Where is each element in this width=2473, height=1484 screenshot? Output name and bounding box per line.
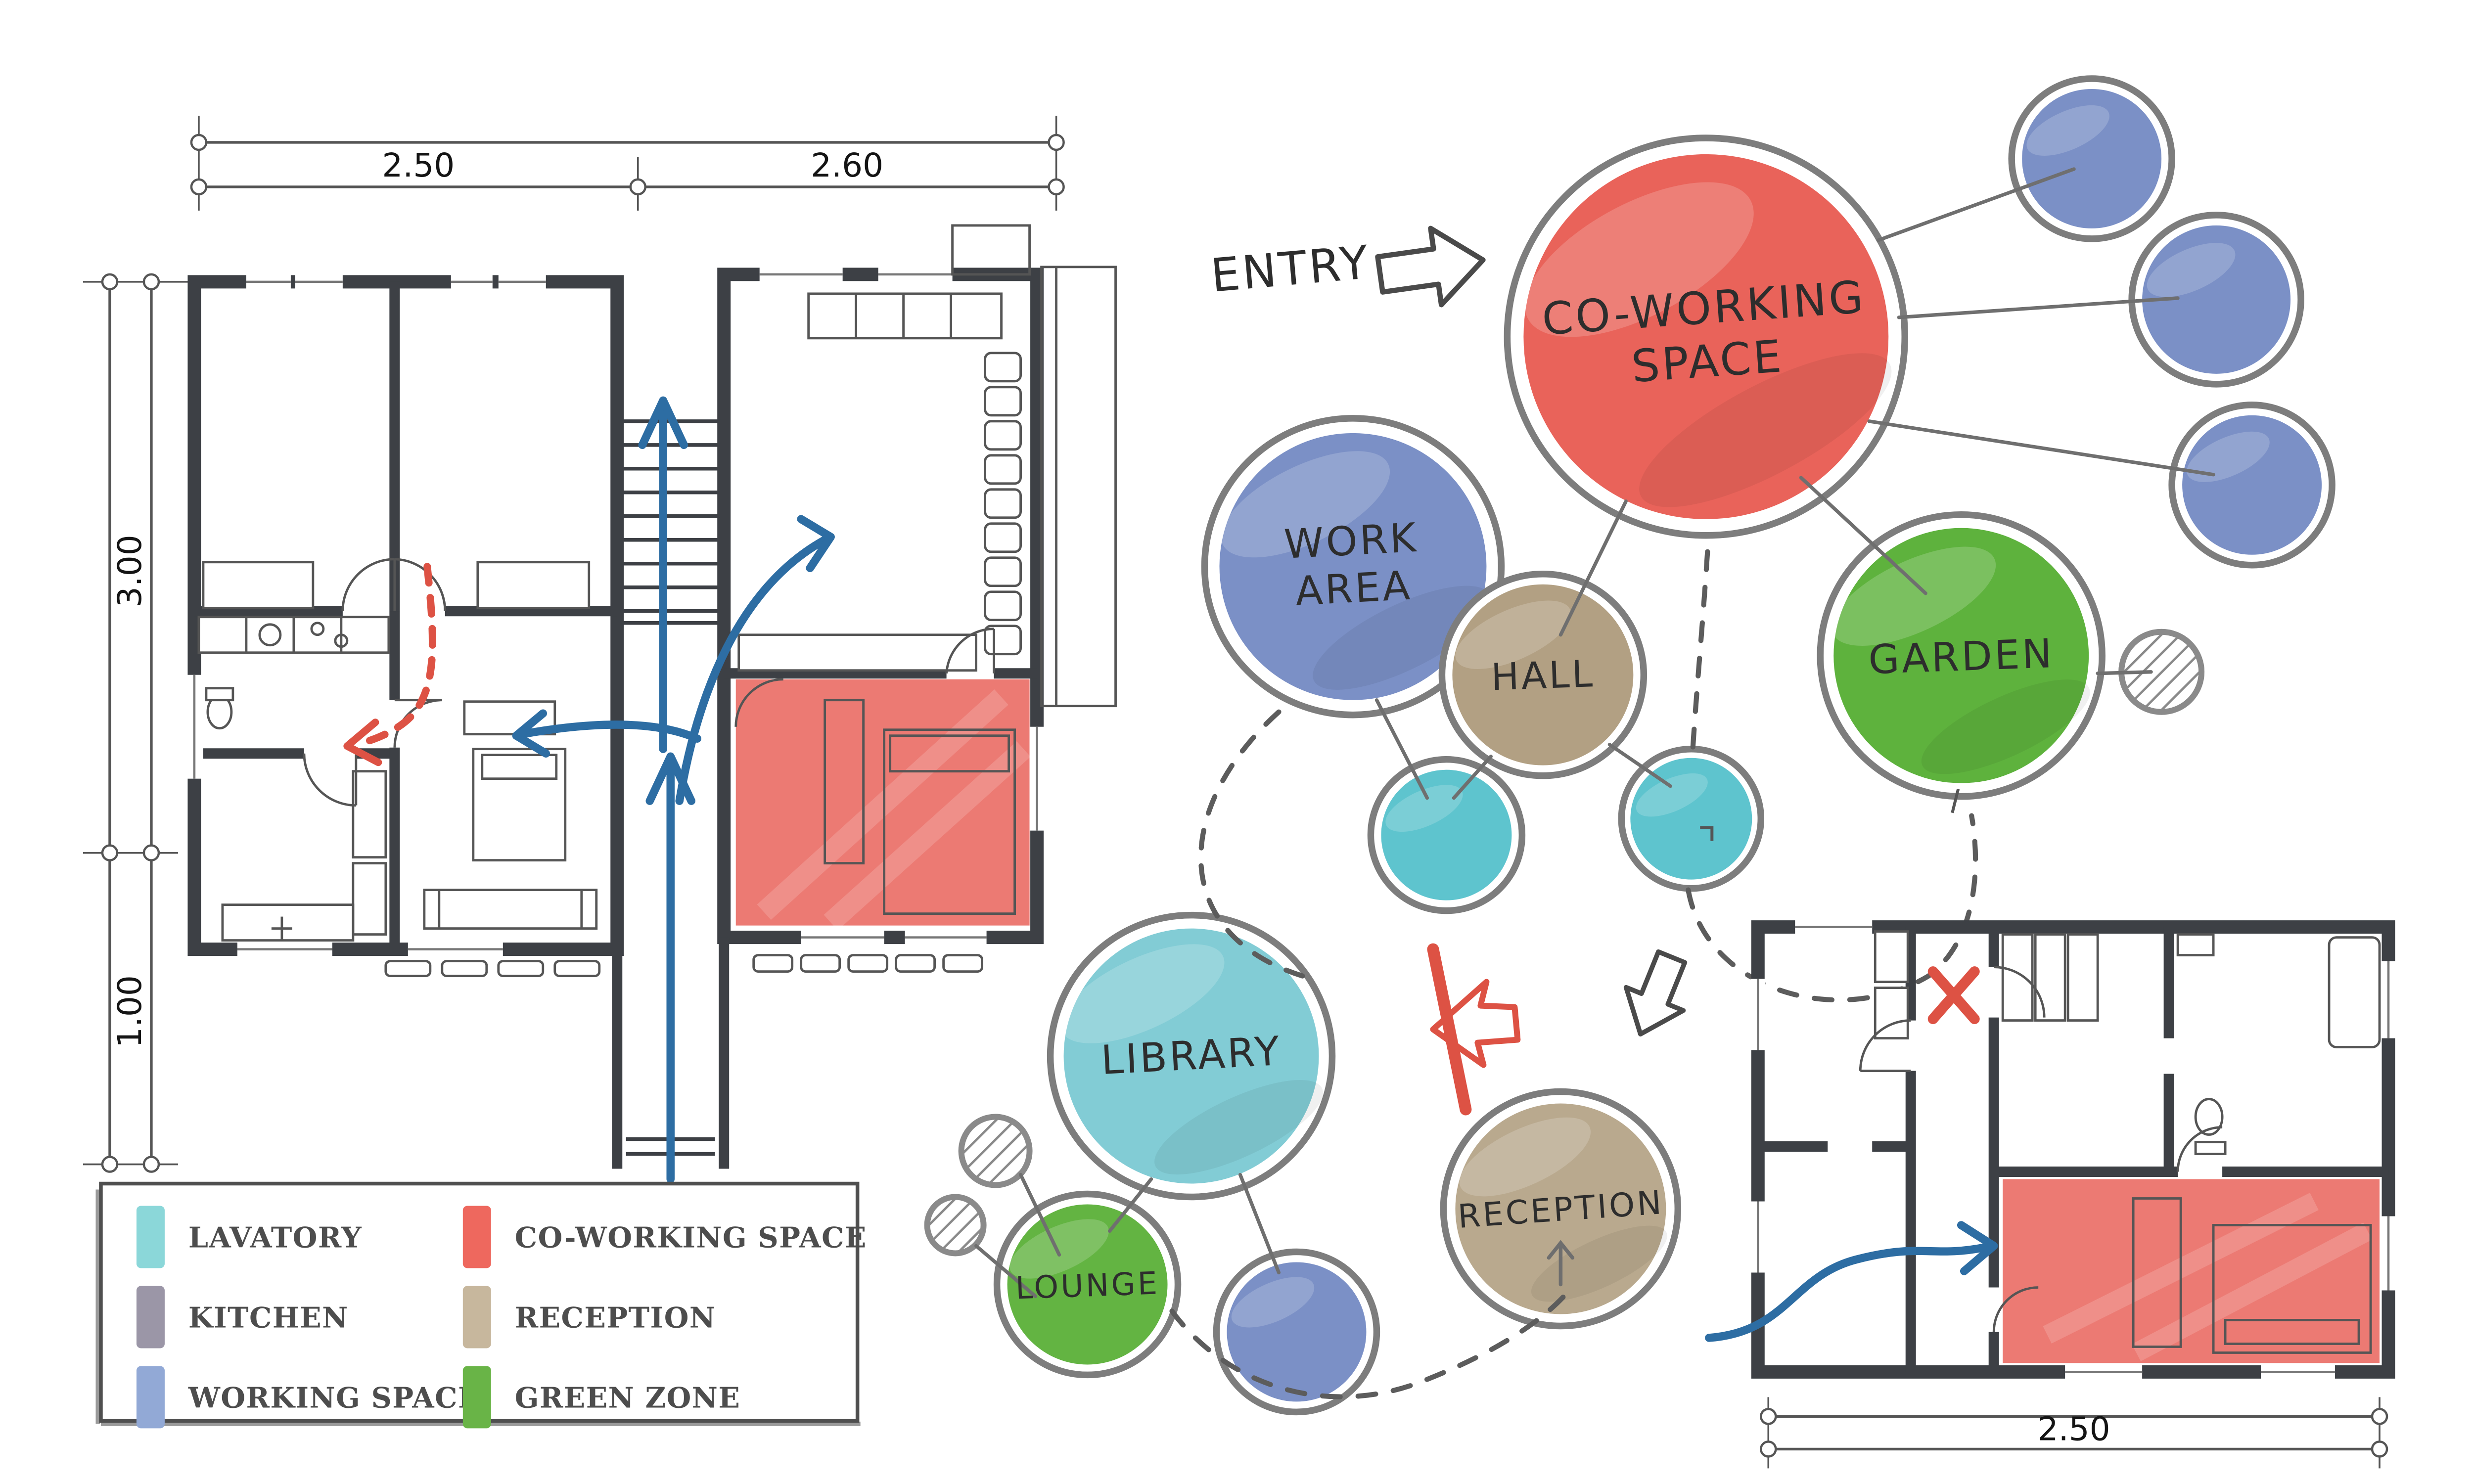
legend: LAVATORY KITCHEN WORKING SPACE CO-WORKIN… [98, 1184, 867, 1429]
coworking-label-line2: SPACE [1630, 330, 1785, 393]
entry-label: ENTRY [1209, 235, 1373, 303]
bubble-lavatory-2 [1621, 749, 1761, 889]
lounge-label: LOUNGE [1015, 1265, 1160, 1306]
down-arrow-icon [1612, 945, 1700, 1045]
small-plan-coworking-room [2003, 1179, 2380, 1363]
legend-label-green-zone: GREEN ZONE [515, 1381, 740, 1414]
bubble-lavatory-1 [1371, 760, 1522, 911]
work-area-label-line1: WORK [1283, 515, 1420, 568]
no-entry-icon [1433, 949, 1517, 1110]
dim-label-top-right: 2.60 [811, 146, 883, 184]
legend-swatch-kitchen [137, 1286, 165, 1348]
legend-label-coworking-space: CO-WORKING SPACE [515, 1221, 867, 1254]
garden-label: GARDEN [1868, 630, 2055, 683]
legend-swatch-reception [463, 1286, 491, 1348]
legend-swatch-lavatory [137, 1206, 165, 1268]
dimension-top: 2.50 2.60 [191, 116, 1064, 211]
bubble-working-satellite-3 [2172, 405, 2332, 565]
bubble-working-small [1217, 1252, 1377, 1412]
dim-label-small-bottom: 2.50 [2038, 1410, 2110, 1448]
bubble-working-satellite-1 [2012, 79, 2172, 239]
legend-label-working-space: WORKING SPACE [188, 1381, 480, 1414]
entry-flow-arrow [650, 757, 691, 1179]
stair-flow-arrow [642, 401, 684, 749]
floor-plan-main: 2.50 2.60 3.00 1.00 [83, 116, 1116, 1179]
entry-arrow-icon [1375, 222, 1489, 313]
legend-label-reception: RECEPTION [515, 1301, 716, 1334]
legend-label-lavatory: LAVATORY [188, 1221, 362, 1254]
dim-label-top-left: 2.50 [382, 146, 455, 184]
legend-swatch-coworking-space [463, 1206, 491, 1268]
rejected-mark-x [1933, 972, 1974, 1019]
legend-label-kitchen: KITCHEN [188, 1301, 349, 1334]
sketch-canvas: 2.50 2.60 3.00 1.00 [0, 0, 2473, 1483]
hall-label: HALL [1490, 652, 1595, 699]
dim-label-side-lower: 1.00 [111, 975, 149, 1048]
library-label: LIBRARY [1100, 1028, 1282, 1084]
main-plan-coworking-room [736, 679, 1030, 926]
floor-plan-small: 2.50 [1709, 920, 2396, 1469]
work-area-label-line2: AREA [1294, 563, 1413, 615]
legend-swatch-green-zone [463, 1366, 491, 1428]
dim-label-side-upper: 3.00 [111, 535, 149, 607]
small-plan-furniture [1875, 932, 2380, 1154]
staircase [623, 421, 721, 623]
legend-swatch-working-space [137, 1366, 165, 1428]
dimension-small-bottom: 2.50 [1761, 1397, 2387, 1468]
